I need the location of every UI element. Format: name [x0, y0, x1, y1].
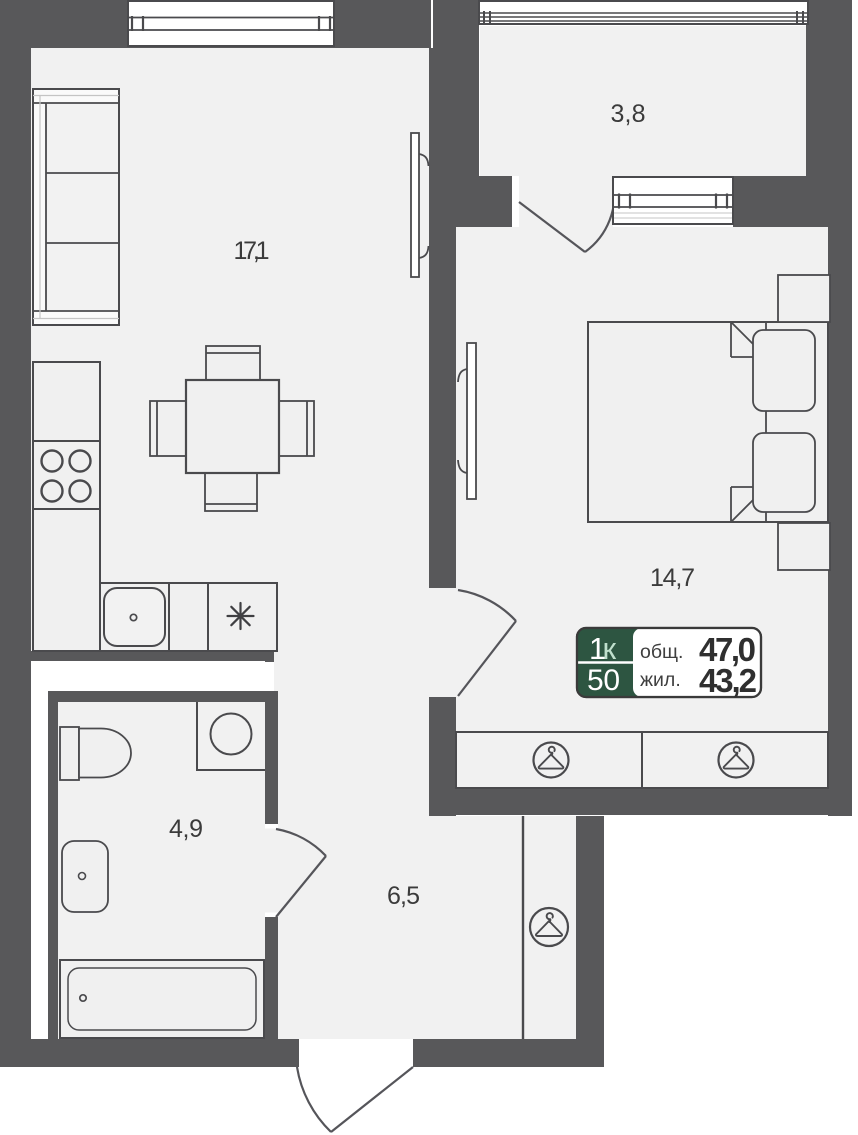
svg-text:17,1: 17,1 [234, 237, 270, 265]
svg-text:50: 50 [587, 664, 620, 697]
svg-text:1к: 1к [589, 631, 616, 666]
svg-text:3,8: 3,8 [611, 100, 646, 128]
svg-text:4,9: 4,9 [169, 815, 203, 843]
svg-text:14,7: 14,7 [650, 564, 695, 592]
svg-text:жил.: жил. [640, 669, 681, 691]
svg-text:общ.: общ. [640, 641, 683, 663]
svg-text:43,2: 43,2 [699, 662, 757, 699]
svg-text:6,5: 6,5 [387, 882, 420, 910]
